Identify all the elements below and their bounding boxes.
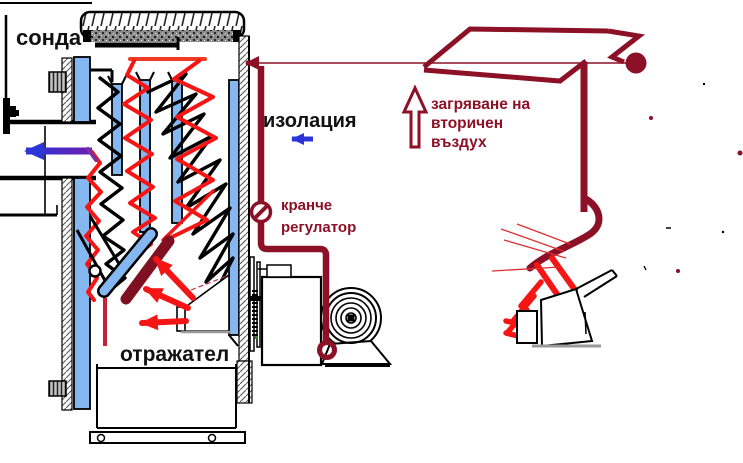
boiler-scheme-diagram: сонда изолация кранче регулатор загряван… [0,0,743,463]
insulation-label: изолация [263,110,357,132]
ink-specks [644,83,743,273]
valve-label-line1: кранче [281,197,332,214]
secondary-air-label-line3: въздух [431,134,487,151]
ash-chamber [97,364,236,428]
blower-motor [262,265,321,365]
secondary-air-arrow-icon [404,88,426,147]
secondary-air-label-line2: вторичен [431,115,503,132]
funnel-ring [90,266,101,277]
secondary-air-label-line1: загряване на [431,96,530,113]
pipe-stub-bottom [49,381,66,396]
boiler-base [90,432,245,443]
reflector-label: отражател [120,343,229,366]
air-injection-detail [492,198,617,346]
heating-panel [424,29,639,81]
boiler-right-wall [229,36,252,403]
valve-label-line2: регулатор [281,219,356,236]
probe-label: сонда [16,25,82,50]
panel-end-circle [626,53,647,74]
probe-bracket [3,98,19,134]
top-seal-band [83,30,241,42]
pipe-stub-top [49,72,66,92]
air-valve-icon [252,203,271,222]
boiler-left-wall [62,58,72,410]
